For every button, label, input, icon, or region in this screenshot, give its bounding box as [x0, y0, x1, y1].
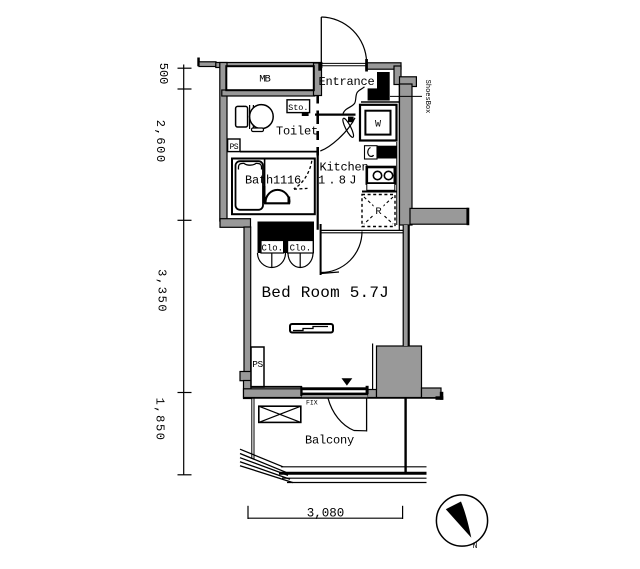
svg-text:1.8J: 1.8J: [318, 174, 360, 188]
svg-text:PS: PS: [229, 143, 238, 152]
svg-text:PS: PS: [252, 359, 263, 370]
svg-text:FIX: FIX: [306, 400, 318, 407]
svg-text:MB: MB: [259, 74, 270, 86]
svg-text:3,350: 3,350: [154, 269, 168, 313]
svg-text:Clo.: Clo.: [261, 244, 283, 254]
svg-text:Kitchen: Kitchen: [320, 161, 369, 175]
svg-text:Clo.: Clo.: [290, 244, 312, 254]
svg-text:1,850: 1,850: [152, 398, 166, 442]
svg-text:Bed Room 5.7J: Bed Room 5.7J: [262, 284, 389, 302]
svg-text:R: R: [375, 206, 382, 218]
svg-text:Entrance: Entrance: [319, 75, 375, 89]
svg-text:ShoesBox: ShoesBox: [423, 80, 431, 114]
svg-text:N: N: [473, 542, 478, 551]
svg-text:500: 500: [156, 63, 170, 85]
svg-text:2,600: 2,600: [153, 120, 167, 164]
svg-text:Sto.: Sto.: [288, 103, 308, 113]
svg-text:W: W: [375, 120, 381, 131]
svg-text:Bath1116: Bath1116: [245, 174, 301, 188]
svg-text:Balcony: Balcony: [305, 434, 354, 448]
svg-text:Toilet: Toilet: [276, 125, 318, 139]
svg-text:3,080: 3,080: [307, 507, 345, 521]
